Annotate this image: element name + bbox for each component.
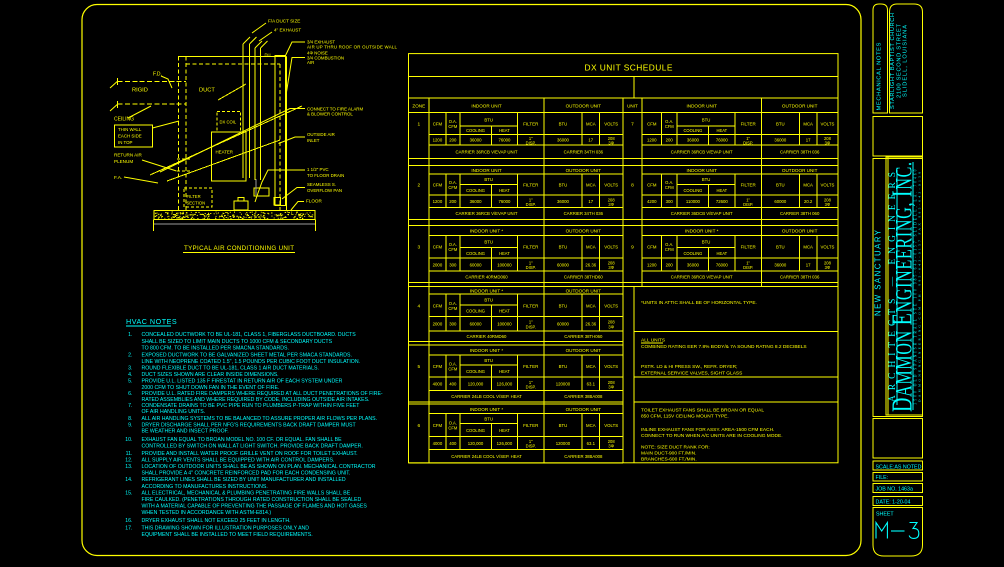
svg-text:SCALE:AS NOTED: SCALE:AS NOTED <box>876 464 922 470</box>
svg-text:DX UNIT SCHEDULE: DX UNIT SCHEDULE <box>585 63 673 73</box>
svg-text:5.: 5. <box>128 378 132 384</box>
svg-text:SHEET: SHEET <box>876 512 894 518</box>
svg-text:RATED ASSEMBLIES AND WHERE REQ: RATED ASSEMBLIES AND WHERE REQUIRED BY C… <box>142 397 370 403</box>
svg-text:STARLIGHT BAPTIST CHURCH: STARLIGHT BAPTIST CHURCH <box>890 13 896 109</box>
svg-text:CARRIER 36RCB V/EVAP UNIT: CARRIER 36RCB V/EVAP UNIT <box>671 274 733 279</box>
svg-text:200: 200 <box>449 138 457 143</box>
svg-text:MAIN DUCT-900 FT./MIN.: MAIN DUCT-900 FT./MIN. <box>641 451 696 457</box>
svg-text:FLOOR: FLOOR <box>306 199 323 204</box>
svg-text:UNIT: UNIT <box>627 103 638 108</box>
svg-text:COOLING: COOLING <box>466 188 485 193</box>
svg-text:INDOOR UNIT *: INDOOR UNIT * <box>470 348 504 353</box>
svg-text:TO 800 CFM. TO BE INSTALLED PE: TO 800 CFM. TO BE INSTALLED PER SMACNA S… <box>142 346 289 352</box>
svg-text:BTU: BTU <box>559 245 568 250</box>
svg-text:CARRIER 36RCB V/EVAP UNIT: CARRIER 36RCB V/EVAP UNIT <box>671 150 733 155</box>
svg-text:4000: 4000 <box>433 382 443 387</box>
svg-text:HEATER: HEATER <box>216 150 233 155</box>
svg-text:300: 300 <box>449 322 457 327</box>
svg-text:3: 3 <box>417 245 420 251</box>
svg-text:INDOOR UNIT: INDOOR UNIT <box>471 168 502 173</box>
svg-text:BE WEATHER AND INSECT PROOF.: BE WEATHER AND INSECT PROOF. <box>142 429 229 435</box>
svg-text:3Φ: 3Φ <box>608 265 614 270</box>
svg-text:DISP.: DISP. <box>743 202 753 207</box>
svg-text:SHALL BE SIZED TO LIMIT MAIN D: SHALL BE SIZED TO LIMIT MAIN DUCTS TO 10… <box>142 339 333 345</box>
svg-text:BTU: BTU <box>559 183 568 188</box>
svg-text:CFM: CFM <box>433 183 443 188</box>
svg-text:200: 200 <box>666 262 674 267</box>
svg-text:MCA: MCA <box>586 183 596 188</box>
svg-text:INDOOR UNIT: INDOOR UNIT <box>687 168 718 173</box>
svg-text:OVERFLOW PAN: OVERFLOW PAN <box>307 188 342 193</box>
svg-text:CFM: CFM <box>433 364 443 369</box>
svg-text:DRYER DISCHARGE SHALL PER NFG': DRYER DISCHARGE SHALL PER NFG'S REQUIREM… <box>142 423 357 429</box>
svg-text:36000: 36000 <box>470 199 483 204</box>
svg-text:26.36: 26.36 <box>585 262 596 267</box>
svg-text:OF AIR HANDLING UNITS.: OF AIR HANDLING UNITS. <box>142 409 206 415</box>
svg-text:SEAMLESS S.: SEAMLESS S. <box>307 182 336 187</box>
svg-text:FILTER: FILTER <box>523 122 539 127</box>
svg-text:INDOOR UNIT *: INDOOR UNIT * <box>470 407 504 412</box>
svg-text:DU: DU <box>265 53 271 58</box>
svg-text:MCA: MCA <box>586 245 596 250</box>
svg-text:17: 17 <box>806 138 811 143</box>
svg-text:BTU: BTU <box>702 177 711 182</box>
svg-text:100000: 100000 <box>497 262 512 267</box>
svg-text:WITH A MATERIAL CAPABLE OF PRE: WITH A MATERIAL CAPABLE OF PREVENTING TH… <box>142 504 368 510</box>
svg-text:CFM: CFM <box>433 245 443 250</box>
svg-text:AIR: AIR <box>307 60 314 65</box>
svg-text:36000: 36000 <box>774 138 787 143</box>
svg-text:DISP.: DISP. <box>526 444 536 449</box>
svg-text:PROVIDE AND INSTALL WATER PROO: PROVIDE AND INSTALL WATER PROOF GRILLE V… <box>142 451 358 457</box>
svg-text:VOLTS: VOLTS <box>604 122 618 127</box>
svg-text:FILTER: FILTER <box>523 364 539 369</box>
svg-text:OUTDOOR UNIT: OUTDOOR UNIT <box>782 228 818 233</box>
svg-text:CARRIER 38BA008: CARRIER 38BA008 <box>564 454 603 459</box>
svg-text:120000: 120000 <box>556 441 571 446</box>
svg-text:13.: 13. <box>125 464 132 470</box>
svg-text:COOLING: COOLING <box>683 128 702 133</box>
svg-text:PROVIDE U.L. LISTED 135 F FIRE: PROVIDE U.L. LISTED 135 F FIRESTAT IN RE… <box>142 378 343 384</box>
svg-text:CARRIER 38TH060: CARRIER 38TH060 <box>564 334 603 339</box>
svg-text:INDOOR UNIT: INDOOR UNIT <box>471 103 502 108</box>
svg-text:850 CFM, 115V CEILING MOUNT TY: 850 CFM, 115V CEILING MOUNT TYPE. <box>641 414 729 420</box>
svg-text:2: 2 <box>417 183 420 189</box>
svg-text:8: 8 <box>631 183 634 189</box>
svg-text:126,000: 126,000 <box>497 382 513 387</box>
svg-text:DRYER EXHAUST SHALL NOT EXCEED: DRYER EXHAUST SHALL NOT EXCEED 25 FEET I… <box>142 518 291 524</box>
svg-text:FILE:: FILE: <box>876 475 889 481</box>
svg-text:6: 6 <box>417 423 420 429</box>
svg-text:HEAT: HEAT <box>499 309 510 314</box>
svg-text:HEAT: HEAT <box>499 188 510 193</box>
svg-text:DISP.: DISP. <box>526 324 536 329</box>
svg-text:CARRIER 36DCB V/EVAP UNIT: CARRIER 36DCB V/EVAP UNIT <box>671 211 733 216</box>
svg-text:1 1/2" PVC: 1 1/2" PVC <box>307 167 329 172</box>
svg-text:BTU: BTU <box>559 364 568 369</box>
svg-text:14.: 14. <box>125 477 132 483</box>
svg-text:FILTER: FILTER <box>741 183 757 188</box>
svg-text:LOCATION OF OUTDOOR UNITS SHAL: LOCATION OF OUTDOOR UNITS SHALL BE AS SH… <box>142 464 376 470</box>
svg-text:BTU: BTU <box>776 122 785 127</box>
svg-text:200: 200 <box>449 199 457 204</box>
svg-text:36000: 36000 <box>687 138 700 143</box>
svg-text:OUTDOOR UNIT: OUTDOOR UNIT <box>566 288 602 293</box>
svg-text:IN TOP: IN TOP <box>118 140 133 145</box>
svg-text:OUTDOOR UNIT: OUTDOOR UNIT <box>566 348 602 353</box>
svg-text:COOLING: COOLING <box>466 128 485 133</box>
svg-text:CARRIER 34TH 036: CARRIER 34TH 036 <box>564 211 604 216</box>
svg-text:63.1: 63.1 <box>587 441 596 446</box>
svg-text:110000: 110000 <box>686 199 701 204</box>
svg-text:COOLING: COOLING <box>466 428 485 433</box>
svg-text:VOLTS: VOLTS <box>604 423 618 428</box>
svg-text:NOTE: SIZE DUCT RANK FOR:: NOTE: SIZE DUCT RANK FOR: <box>641 445 710 451</box>
svg-text:DUCT SIZES SHOWN ARE CLEAR INS: DUCT SIZES SHOWN ARE CLEAR INSIDE DIMENS… <box>142 372 279 378</box>
svg-text:VOLTS: VOLTS <box>604 245 618 250</box>
svg-text:CONNECT TO RUN WHEN A/C UNITS: CONNECT TO RUN WHEN A/C UNITS ARE IN COO… <box>641 433 783 439</box>
svg-text:ZONE: ZONE <box>412 103 425 108</box>
svg-text:1200: 1200 <box>647 262 657 267</box>
svg-text:FILTER: FILTER <box>523 303 539 308</box>
svg-text:CARRIER 38BA008: CARRIER 38BA008 <box>564 394 603 399</box>
svg-text:FILTER: FILTER <box>741 245 757 250</box>
svg-text:400: 400 <box>449 382 457 387</box>
svg-text:EACH SIDE: EACH SIDE <box>118 134 142 139</box>
svg-text:EXHAUST FAN EQUAL TO BROAN MOD: EXHAUST FAN EQUAL TO BROAN MODEL NO. 100… <box>142 437 343 443</box>
svg-text:PROVIDE U.L. RATED FIRE DAMPER: PROVIDE U.L. RATED FIRE DAMPERS WHERE RE… <box>142 391 383 397</box>
svg-text:MCA: MCA <box>586 423 596 428</box>
svg-text:ACCORDING TO MANUFACTURES INST: ACCORDING TO MANUFACTURES INSTRUCTIONS. <box>142 484 268 490</box>
svg-text:1200: 1200 <box>647 138 657 143</box>
svg-text:TOILET EXHAUST FANS SHALL BE B: TOILET EXHAUST FANS SHALL BE BROAN OR EQ… <box>641 408 764 414</box>
svg-text:CFM: CFM <box>433 122 443 127</box>
svg-text:CFM: CFM <box>647 183 657 188</box>
svg-text:CONCEALED DUCTWORK TO BE UL-18: CONCEALED DUCTWORK TO BE UL-181, CLASS 1… <box>142 332 357 338</box>
svg-text:3/4 EXHAUST: 3/4 EXHAUST <box>307 39 335 44</box>
svg-text:CARRIER 40RMD060: CARRIER 40RMD060 <box>465 274 508 279</box>
svg-text:4200: 4200 <box>647 199 657 204</box>
svg-text:COOLING: COOLING <box>466 251 485 256</box>
svg-text:AIR UP THRU ROOF OR OUTSIDE WA: AIR UP THRU ROOF OR OUTSIDE WALL <box>307 45 398 50</box>
svg-text:120,000: 120,000 <box>468 382 484 387</box>
svg-text:INDOOR UNIT: INDOOR UNIT <box>687 103 718 108</box>
svg-text:5: 5 <box>417 364 420 370</box>
svg-text:36000: 36000 <box>687 262 700 267</box>
svg-text:CARRIER 24LB COOL V/SEP. HEAT: CARRIER 24LB COOL V/SEP. HEAT <box>451 454 522 459</box>
svg-text:HEAT: HEAT <box>499 128 510 133</box>
svg-text:BTU: BTU <box>484 117 493 122</box>
svg-text:JOB NO. 1463a: JOB NO. 1463a <box>876 487 913 493</box>
svg-text:MCA: MCA <box>803 245 813 250</box>
svg-text:MCA: MCA <box>586 122 596 127</box>
svg-text:DUCT: DUCT <box>199 88 215 94</box>
svg-text:DISP.: DISP. <box>743 140 753 145</box>
svg-text:CONTROLLED BY SWITCH ON WALL A: CONTROLLED BY SWITCH ON WALL AT LIGHT SW… <box>142 444 363 450</box>
svg-text:400: 400 <box>449 441 457 446</box>
svg-text:CFM: CFM <box>665 247 674 252</box>
svg-text:60000: 60000 <box>470 262 483 267</box>
svg-text:REFRIGERANT LINES SHALL BE SIZ: REFRIGERANT LINES SHALL BE SIZED BY UNIT… <box>142 477 346 483</box>
svg-text:60000: 60000 <box>774 199 787 204</box>
svg-text:9: 9 <box>631 245 634 251</box>
svg-text:1200: 1200 <box>433 199 443 204</box>
svg-text:CFM: CFM <box>647 122 657 127</box>
svg-text:2.: 2. <box>128 353 132 359</box>
svg-text:PLENUM: PLENUM <box>114 159 133 164</box>
svg-text:ALL SUPPLY AIR VENTS SHALL BE: ALL SUPPLY AIR VENTS SHALL BE EQUIPPED W… <box>142 457 335 463</box>
svg-text:DISP.: DISP. <box>743 265 753 270</box>
svg-text:17: 17 <box>588 138 593 143</box>
svg-text:100000: 100000 <box>497 322 512 327</box>
svg-text:TYPICAL AIR CONDITIONING UN: TYPICAL AIR CONDITIONING UNIT <box>184 245 294 252</box>
svg-text:36000: 36000 <box>774 262 787 267</box>
svg-text:BRANCHES-600 FT./MIN.: BRANCHES-600 FT./MIN. <box>641 457 697 463</box>
svg-text:OUTDOOR UNIT: OUTDOOR UNIT <box>566 228 602 233</box>
svg-text:DISP.: DISP. <box>526 202 536 207</box>
svg-text:WHEN TESTED IN ACCORDANCE WITH: WHEN TESTED IN ACCORDANCE WITH ASTM-E814… <box>142 510 272 516</box>
svg-text:CARRIER 36RCB V/EVAP UNIT: CARRIER 36RCB V/EVAP UNIT <box>456 211 518 216</box>
svg-text:F/A DUCT SIZE: F/A DUCT SIZE <box>268 19 300 24</box>
svg-text:VOLTS: VOLTS <box>604 364 618 369</box>
svg-text:EQUIPMENT SHALL BE INSTALLED T: EQUIPMENT SHALL BE INSTALLED TO MEET FIE… <box>142 532 313 538</box>
svg-text:36000: 36000 <box>470 138 483 143</box>
svg-text:INDOOR UNIT *: INDOOR UNIT * <box>470 228 504 233</box>
svg-text:3Φ: 3Φ <box>608 140 614 145</box>
svg-text:3Φ: 3Φ <box>825 265 831 270</box>
svg-text:BTU: BTU <box>559 122 568 127</box>
svg-text:CFM: CFM <box>448 425 457 430</box>
svg-text:PSTR. LD & HI PRESS SW., REFR.: PSTR. LD & HI PRESS SW., REFR. DRYER; <box>641 364 737 370</box>
svg-text:BTU: BTU <box>484 298 493 303</box>
svg-text:3Φ: 3Φ <box>608 384 614 389</box>
svg-text:17: 17 <box>806 262 811 267</box>
svg-text:4" EXHAUST: 4" EXHAUST <box>274 28 301 33</box>
svg-text:SHALL PROVIDE A 4" CONCRETE RE: SHALL PROVIDE A 4" CONCRETE REINFORCED P… <box>142 471 351 477</box>
svg-text:CARRIER 34TH 036: CARRIER 34TH 036 <box>564 150 604 155</box>
svg-text:HVAC NOTES: HVAC NOTES <box>126 317 177 326</box>
svg-text:F.A.: F.A. <box>114 175 122 181</box>
svg-text:BTU: BTU <box>702 117 711 122</box>
svg-text:15.: 15. <box>125 490 132 496</box>
svg-text:CFM: CFM <box>448 124 457 129</box>
svg-text:EXTERNAL SERVICE VALVES, SIGHT: EXTERNAL SERVICE VALVES, SIGHT GLASS <box>641 371 742 377</box>
svg-text:HEAT: HEAT <box>717 251 728 256</box>
svg-text:4.: 4. <box>128 372 132 378</box>
svg-text:& BLOWER CONTROL: & BLOWER CONTROL <box>307 111 353 116</box>
svg-text:CARRIER 38TH 060: CARRIER 38TH 060 <box>780 211 820 216</box>
svg-text:*UNITS IN ATTIC SHALL BE OF HO: *UNITS IN ATTIC SHALL BE OF HORIZONTAL T… <box>641 300 757 306</box>
svg-text:BTU: BTU <box>484 177 493 182</box>
svg-text:BTU: BTU <box>484 358 493 363</box>
svg-text:CARRIER 38TH 036: CARRIER 38TH 036 <box>780 274 820 279</box>
svg-text:17: 17 <box>588 199 593 204</box>
svg-text:EXPOSED DUCTWORK TO BE GALVANI: EXPOSED DUCTWORK TO BE GALVANIZED SHEET … <box>142 353 352 359</box>
svg-text:26.36: 26.36 <box>585 322 596 327</box>
svg-text:4: 4 <box>417 303 420 309</box>
svg-text:FILTER: FILTER <box>523 183 539 188</box>
svg-text:BTU: BTU <box>559 423 568 428</box>
svg-text:20.2: 20.2 <box>804 199 813 204</box>
svg-text:HEAT: HEAT <box>499 428 510 433</box>
svg-text:3Φ: 3Φ <box>608 324 614 329</box>
svg-text:INLET: INLET <box>307 138 320 143</box>
svg-text:HEAT: HEAT <box>499 251 510 256</box>
svg-text:3Φ: 3Φ <box>608 202 614 207</box>
svg-text:1.: 1. <box>128 332 132 338</box>
svg-text:FILTER: FILTER <box>523 423 539 428</box>
svg-text:BTU: BTU <box>776 245 785 250</box>
svg-text:TO FLOOR DRAIN: TO FLOOR DRAIN <box>307 173 344 178</box>
svg-text:CFM: CFM <box>665 124 674 129</box>
svg-text:CFM: CFM <box>448 306 457 311</box>
svg-text:CARRIER 40RMD60: CARRIER 40RMD60 <box>467 334 507 339</box>
svg-text:12.: 12. <box>125 457 132 463</box>
svg-text:CFM: CFM <box>448 247 457 252</box>
svg-text:COOLING: COOLING <box>466 369 485 374</box>
svg-text:COOLING: COOLING <box>683 188 702 193</box>
svg-text:300: 300 <box>666 199 674 204</box>
svg-text:BTU: BTU <box>702 239 711 244</box>
svg-text:LINE WITH NEOPRENE COATED 1.5": LINE WITH NEOPRENE COATED 1.5", 1.5 POUN… <box>142 359 361 365</box>
svg-text:36000: 36000 <box>557 199 570 204</box>
svg-text:CFM: CFM <box>433 303 443 308</box>
svg-text:MCA: MCA <box>803 183 813 188</box>
svg-text:76000: 76000 <box>498 199 511 204</box>
svg-text:OUTDOOR UNIT: OUTDOOR UNIT <box>566 407 602 412</box>
svg-text:120000: 120000 <box>556 382 571 387</box>
svg-text:3Φ: 3Φ <box>825 202 831 207</box>
svg-text:OUTSIDE AIR: OUTSIDE AIR <box>307 132 335 137</box>
svg-text:60000: 60000 <box>470 322 483 327</box>
svg-text:MCA: MCA <box>586 364 596 369</box>
svg-text:HEAT: HEAT <box>717 188 728 193</box>
svg-text:OUTDOOR UNIT: OUTDOOR UNIT <box>782 168 818 173</box>
svg-text:FILTER: FILTER <box>523 245 539 250</box>
svg-text:FIRE CAULKED. (PENETRATIONS TH: FIRE CAULKED. (PENETRATIONS THROUGH RATE… <box>142 497 362 503</box>
svg-text:OUTDOOR UNIT: OUTDOOR UNIT <box>782 103 818 108</box>
svg-text:HEAT: HEAT <box>717 128 728 133</box>
svg-text:MCA: MCA <box>586 303 596 308</box>
svg-text:COOLING: COOLING <box>683 251 702 256</box>
svg-text:120,000: 120,000 <box>468 441 484 446</box>
svg-text:SLIDELL, LOUISIANA: SLIDELL, LOUISIANA <box>903 25 909 97</box>
svg-text:BTU: BTU <box>559 303 568 308</box>
svg-text:FILTER: FILTER <box>741 122 757 127</box>
svg-text:16.: 16. <box>125 518 132 524</box>
svg-text:OUTDOOR UNIT: OUTDOOR UNIT <box>566 168 602 173</box>
svg-text:SECTION: SECTION <box>187 201 206 206</box>
svg-text:9.: 9. <box>128 423 132 429</box>
svg-text:BTU: BTU <box>776 183 785 188</box>
svg-text:CFM: CFM <box>448 367 457 372</box>
svg-text:CARRIER 38TH 036: CARRIER 38TH 036 <box>780 150 820 155</box>
svg-text:VOLTS: VOLTS <box>604 183 618 188</box>
svg-text:DISP.: DISP. <box>526 265 536 270</box>
svg-text:CFM: CFM <box>448 185 457 190</box>
svg-text:THIS DRAWING SHOWN FOR ILLUSTR: THIS DRAWING SHOWN FOR ILLUSTRATION PURP… <box>142 525 310 531</box>
svg-text:7.: 7. <box>128 403 132 409</box>
svg-text:1200: 1200 <box>433 138 443 143</box>
svg-text:11.: 11. <box>126 451 133 457</box>
svg-text:RETURN AIR: RETURN AIR <box>114 153 143 158</box>
svg-text:3Φ: 3Φ <box>825 140 831 145</box>
svg-text:6.: 6. <box>128 391 132 397</box>
svg-text:2000: 2000 <box>433 322 443 327</box>
svg-text:2100 SECOND STREET: 2100 SECOND STREET <box>896 23 902 98</box>
svg-text:FILTER: FILTER <box>187 194 201 199</box>
svg-text:VOLTS: VOLTS <box>604 303 618 308</box>
svg-text:CONDENSATE DRAINS TO BE PVC PI: CONDENSATE DRAINS TO BE PVC PIPE RUN TO … <box>142 403 361 409</box>
svg-text:BTU: BTU <box>484 416 493 421</box>
svg-text:MCA: MCA <box>803 122 813 127</box>
svg-text:36000: 36000 <box>557 138 570 143</box>
svg-text:10.: 10. <box>125 437 132 443</box>
svg-text:INLINE EXHAUST FANS FOR ASSY.: INLINE EXHAUST FANS FOR ASSY. AREA-1500 … <box>641 427 774 433</box>
svg-text:MECHANICAL NOTES: MECHANICAL NOTES <box>877 42 883 110</box>
svg-text:CARRIER 24LB COOL V/SEP. HEAT: CARRIER 24LB COOL V/SEP. HEAT <box>451 394 522 399</box>
svg-text:CFM: CFM <box>433 423 443 428</box>
svg-text:RIGID: RIGID <box>132 88 148 94</box>
svg-text:CFM: CFM <box>647 245 657 250</box>
svg-text:DISP.: DISP. <box>526 384 536 389</box>
svg-text:ALL AIR HANDLING SYSTEMS TO BE: ALL AIR HANDLING SYSTEMS TO BE BALANCED … <box>142 416 378 422</box>
svg-text:72600: 72600 <box>716 199 729 204</box>
svg-text:CEILING: CEILING <box>114 116 134 122</box>
svg-text:CARRIER 36RCB V/EVAP UNIT: CARRIER 36RCB V/EVAP UNIT <box>456 150 518 155</box>
svg-text:HEAT: HEAT <box>499 369 510 374</box>
svg-text:8.: 8. <box>128 416 132 422</box>
svg-text:INDOOR UNIT *: INDOOR UNIT * <box>470 288 504 293</box>
svg-text:126,000: 126,000 <box>497 441 513 446</box>
svg-text:DATE: 1-20-04: DATE: 1-20-04 <box>876 500 911 506</box>
svg-text:3Φ: 3Φ <box>608 444 614 449</box>
svg-text:DX COIL: DX COIL <box>220 120 237 125</box>
svg-text:76000: 76000 <box>498 138 511 143</box>
svg-text:F.D.: F.D. <box>153 72 162 78</box>
svg-text:60000: 60000 <box>557 262 570 267</box>
svg-text:2000: 2000 <box>433 262 443 267</box>
svg-text:76000: 76000 <box>716 262 729 267</box>
svg-text:COMBINED RATING EER 7.8% BODY/: COMBINED RATING EER 7.8% BODY/& 7A SOUND… <box>641 344 807 350</box>
svg-text:ALL ELECTRICAL, MECHANICAL & P: ALL ELECTRICAL, MECHANICAL & PLUMBING PE… <box>142 490 351 496</box>
svg-text:OUTDOOR UNIT: OUTDOOR UNIT <box>566 103 602 108</box>
svg-text:VOLTS: VOLTS <box>821 122 835 127</box>
svg-text:17.: 17. <box>125 525 132 531</box>
svg-text:DISP.: DISP. <box>526 140 536 145</box>
svg-text:COOLING: COOLING <box>466 309 485 314</box>
svg-text:2000 CFM TO SHUT DOWN FAN IN T: 2000 CFM TO SHUT DOWN FAN IN THE EVENT O… <box>142 385 280 391</box>
svg-text:BTU: BTU <box>484 239 493 244</box>
svg-text:VOLTS: VOLTS <box>821 245 835 250</box>
svg-text:INDOOR UNIT *: INDOOR UNIT * <box>685 228 719 233</box>
svg-text:NEW SANCTUARY: NEW SANCTUARY <box>874 229 883 316</box>
svg-text:200: 200 <box>666 138 674 143</box>
svg-text:THIN WALL: THIN WALL <box>118 127 142 132</box>
svg-text:1: 1 <box>417 122 420 128</box>
svg-text:ROUND FLEXIBLE DUCT TO BE UL-1: ROUND FLEXIBLE DUCT TO BE UL-181, CLASS … <box>142 366 319 372</box>
svg-text:4000: 4000 <box>433 441 443 446</box>
svg-text:7: 7 <box>631 122 634 128</box>
svg-text:60000: 60000 <box>557 322 570 327</box>
svg-text:3.: 3. <box>128 366 132 372</box>
svg-text:63.1: 63.1 <box>587 382 596 387</box>
svg-text:CARRIER 38THD60: CARRIER 38THD60 <box>564 274 604 279</box>
svg-text:VOLTS: VOLTS <box>821 183 835 188</box>
svg-text:CFM: CFM <box>665 185 674 190</box>
svg-text:300: 300 <box>449 262 457 267</box>
svg-text:76000: 76000 <box>716 138 729 143</box>
